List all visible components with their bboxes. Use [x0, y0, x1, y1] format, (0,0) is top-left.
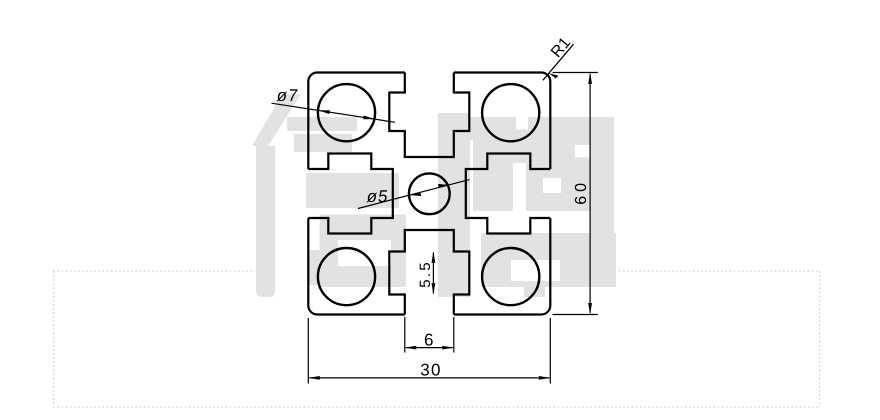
svg-text:5.5: 5.5: [417, 260, 434, 287]
svg-text:60: 60: [573, 179, 590, 205]
svg-text:ø5: ø5: [365, 187, 390, 206]
svg-text:30: 30: [420, 361, 442, 380]
svg-text:ø7: ø7: [275, 86, 300, 105]
svg-text:R1: R1: [548, 34, 574, 61]
svg-text:6: 6: [424, 331, 433, 350]
